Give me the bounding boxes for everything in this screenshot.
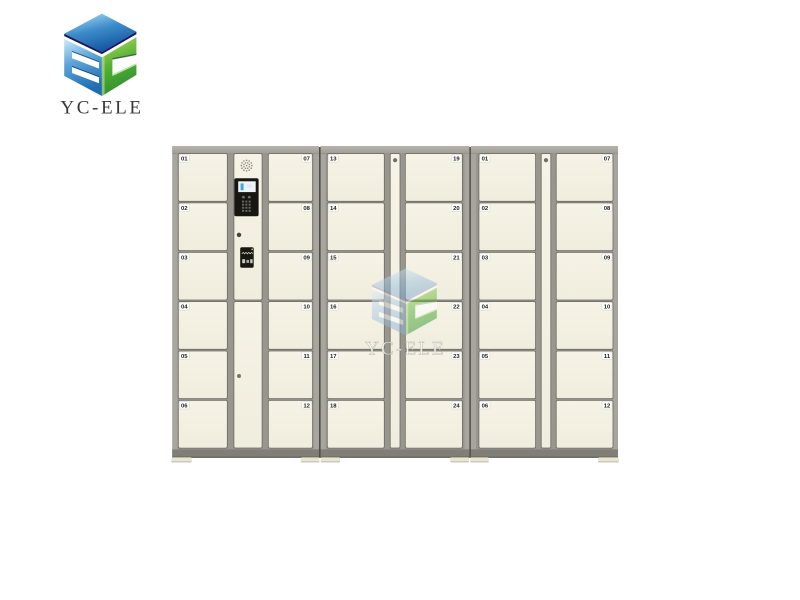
svg-text:18: 18 (330, 403, 337, 409)
svg-text:YC-ELE: YC-ELE (365, 339, 446, 360)
svg-text:04: 04 (482, 305, 489, 311)
svg-text:01: 01 (181, 157, 188, 163)
svg-text:03: 03 (482, 255, 489, 261)
svg-text:12: 12 (604, 403, 611, 409)
svg-text:15: 15 (330, 255, 337, 261)
svg-text:20: 20 (453, 206, 460, 212)
svg-text:23: 23 (453, 354, 460, 360)
svg-text:07: 07 (303, 157, 310, 163)
svg-text:11: 11 (604, 354, 611, 360)
svg-text:12: 12 (303, 403, 310, 409)
svg-text:19: 19 (453, 157, 460, 163)
svg-text:06: 06 (482, 403, 489, 409)
svg-text:09: 09 (303, 255, 310, 261)
svg-text:22: 22 (453, 305, 460, 311)
svg-text:10: 10 (604, 305, 611, 311)
svg-text:17: 17 (330, 354, 337, 360)
svg-text:03: 03 (181, 255, 188, 261)
svg-text:08: 08 (604, 206, 611, 212)
svg-text:24: 24 (453, 403, 460, 409)
svg-text:07: 07 (604, 157, 611, 163)
svg-text:05: 05 (181, 354, 188, 360)
svg-text:01: 01 (482, 157, 489, 163)
svg-text:10: 10 (303, 305, 310, 311)
svg-text:16: 16 (330, 305, 337, 311)
svg-text:04: 04 (181, 305, 188, 311)
svg-text:13: 13 (330, 157, 337, 163)
svg-text:05: 05 (482, 354, 489, 360)
svg-text:09: 09 (604, 255, 611, 261)
svg-text:11: 11 (303, 354, 310, 360)
svg-text:02: 02 (482, 206, 489, 212)
svg-text:14: 14 (330, 206, 337, 212)
svg-text:08: 08 (303, 206, 310, 212)
svg-text:21: 21 (453, 255, 460, 261)
svg-text:02: 02 (181, 206, 188, 212)
svg-text:06: 06 (181, 403, 188, 409)
svg-text:YC-ELE: YC-ELE (60, 98, 143, 119)
